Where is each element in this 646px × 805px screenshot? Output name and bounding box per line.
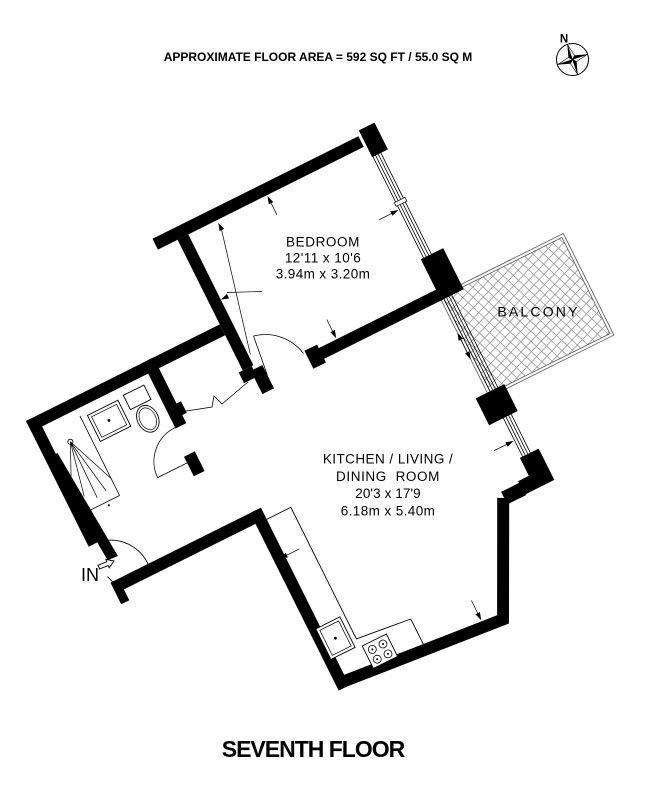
svg-text:6.18m x 5.40m: 6.18m x 5.40m <box>341 504 436 519</box>
svg-text:12'11 x 10'6: 12'11 x 10'6 <box>285 251 361 266</box>
svg-text:N: N <box>560 34 568 46</box>
svg-text:SEVENTH FLOOR: SEVENTH FLOOR <box>222 736 406 762</box>
svg-text:3.94m x 3.20m: 3.94m x 3.20m <box>276 267 371 282</box>
svg-text:IN: IN <box>81 565 99 585</box>
svg-text:BEDROOM: BEDROOM <box>286 235 360 250</box>
svg-text:20'3 x 17'9: 20'3 x 17'9 <box>355 486 421 501</box>
svg-text:KITCHEN / LIVING /: KITCHEN / LIVING / <box>323 452 453 467</box>
svg-text:DINING ROOM: DINING ROOM <box>336 469 440 484</box>
svg-text:APPROXIMATE FLOOR AREA = 592 S: APPROXIMATE FLOOR AREA = 592 SQ FT / 55.… <box>164 50 473 64</box>
svg-text:BALCONY: BALCONY <box>497 304 579 320</box>
